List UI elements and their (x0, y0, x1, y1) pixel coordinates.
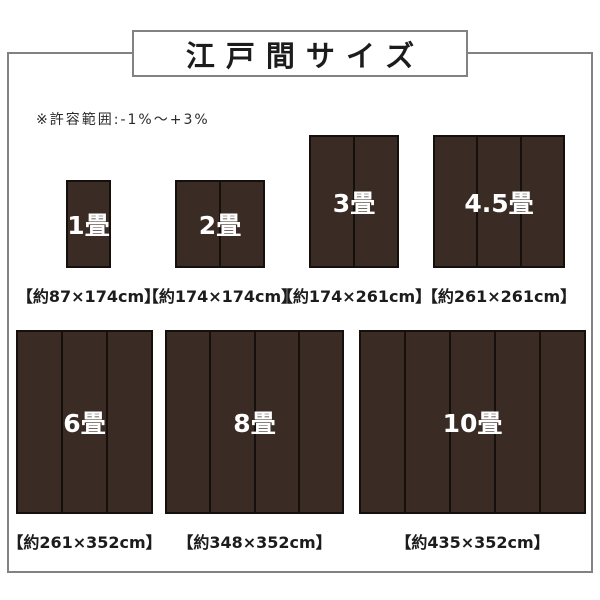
mat-panel (539, 332, 584, 512)
tolerance-note: ※許容範囲:-1%〜+3% (36, 109, 210, 129)
mat-3jo: 3畳 (309, 135, 399, 268)
mat-6jo: 6畳 (16, 330, 153, 514)
mat-size-name: 10畳 (443, 404, 503, 440)
mat-size-name: 4.5畳 (464, 184, 533, 220)
mat-panel (18, 332, 61, 512)
mat-dimensions-label: 【約174×174cm】 (143, 283, 297, 307)
size-chart-figure: 江戸間サイズ ※許容範囲:-1%〜+3% 1畳【約87×174cm】2畳【約17… (0, 0, 600, 600)
mat-dimensions-label: 【約261×352cm】 (7, 529, 161, 553)
mat-panel (167, 332, 209, 512)
mat-10jo: 10畳 (359, 330, 586, 514)
mat-dimensions-label: 【約174×261cm】 (277, 283, 431, 307)
mat-size-name: 8畳 (233, 404, 275, 440)
title-box: 江戸間サイズ (132, 30, 468, 77)
mat-panel (298, 332, 342, 512)
mat-panel (106, 332, 151, 512)
mat-dimensions-label: 【約435×352cm】 (395, 529, 549, 553)
mat-size-name: 2畳 (199, 206, 241, 242)
mat-dimensions-label: 【約348×352cm】 (177, 529, 331, 553)
mat-8jo: 8畳 (165, 330, 344, 514)
mat-4_5jo: 4.5畳 (433, 135, 565, 268)
mat-size-name: 6畳 (63, 404, 105, 440)
mat-dimensions-label: 【約261×261cm】 (422, 283, 576, 307)
mat-dimensions-label: 【約87×174cm】 (17, 283, 160, 307)
mat-size-name: 1畳 (67, 206, 109, 242)
mat-2jo: 2畳 (175, 180, 265, 268)
mat-1jo: 1畳 (66, 180, 111, 268)
mat-size-name: 3畳 (333, 184, 375, 220)
page-title: 江戸間サイズ (186, 33, 425, 75)
mat-panel (361, 332, 404, 512)
